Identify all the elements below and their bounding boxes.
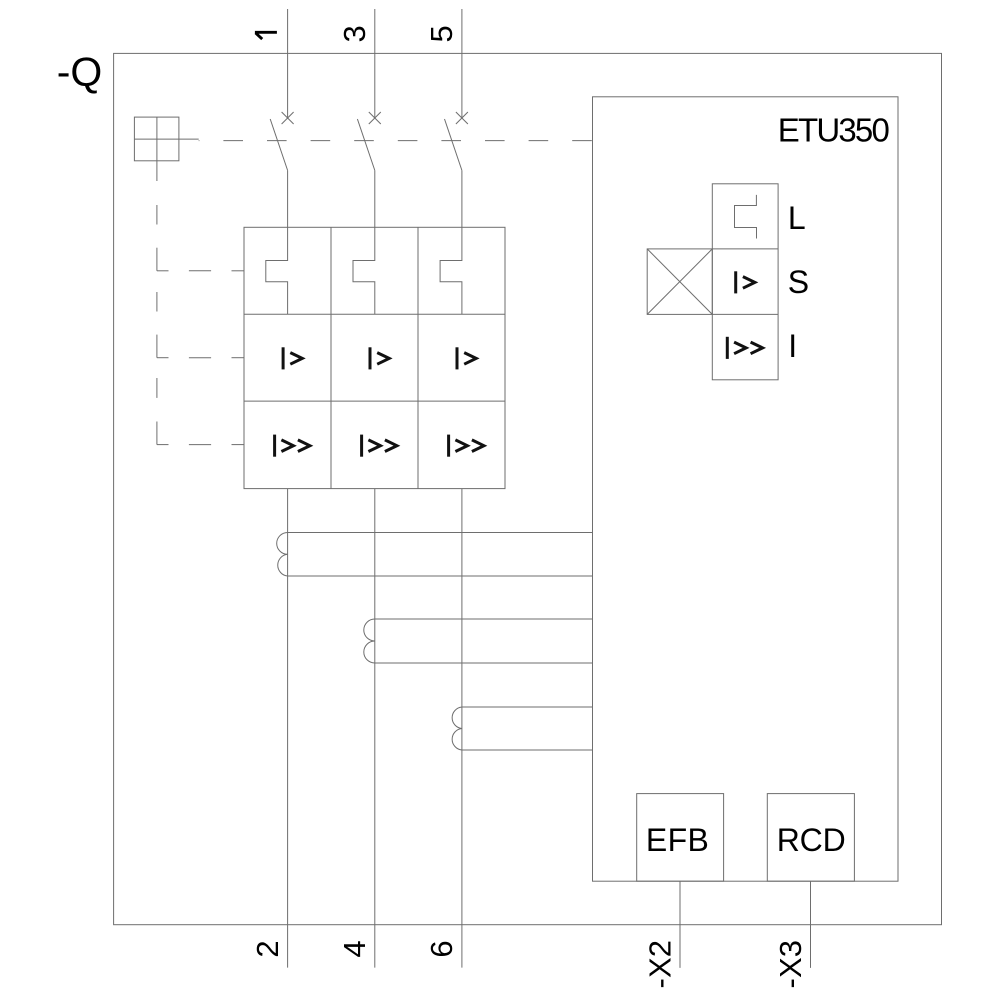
svg-text:I: I (788, 328, 797, 364)
svg-text:EFB: EFB (646, 822, 709, 858)
svg-text:2: 2 (250, 940, 285, 957)
svg-text:3: 3 (337, 25, 372, 42)
svg-text:L: L (788, 200, 806, 236)
svg-text:5: 5 (424, 25, 459, 42)
svg-text:S: S (788, 264, 809, 300)
svg-text:-X2: -X2 (642, 940, 677, 989)
svg-text:RCD: RCD (777, 822, 846, 858)
svg-text:-X3: -X3 (773, 940, 808, 989)
svg-text:-Q: -Q (57, 49, 103, 95)
svg-text:4: 4 (337, 940, 372, 957)
svg-text:6: 6 (424, 940, 459, 957)
svg-text:ETU350: ETU350 (778, 111, 890, 148)
